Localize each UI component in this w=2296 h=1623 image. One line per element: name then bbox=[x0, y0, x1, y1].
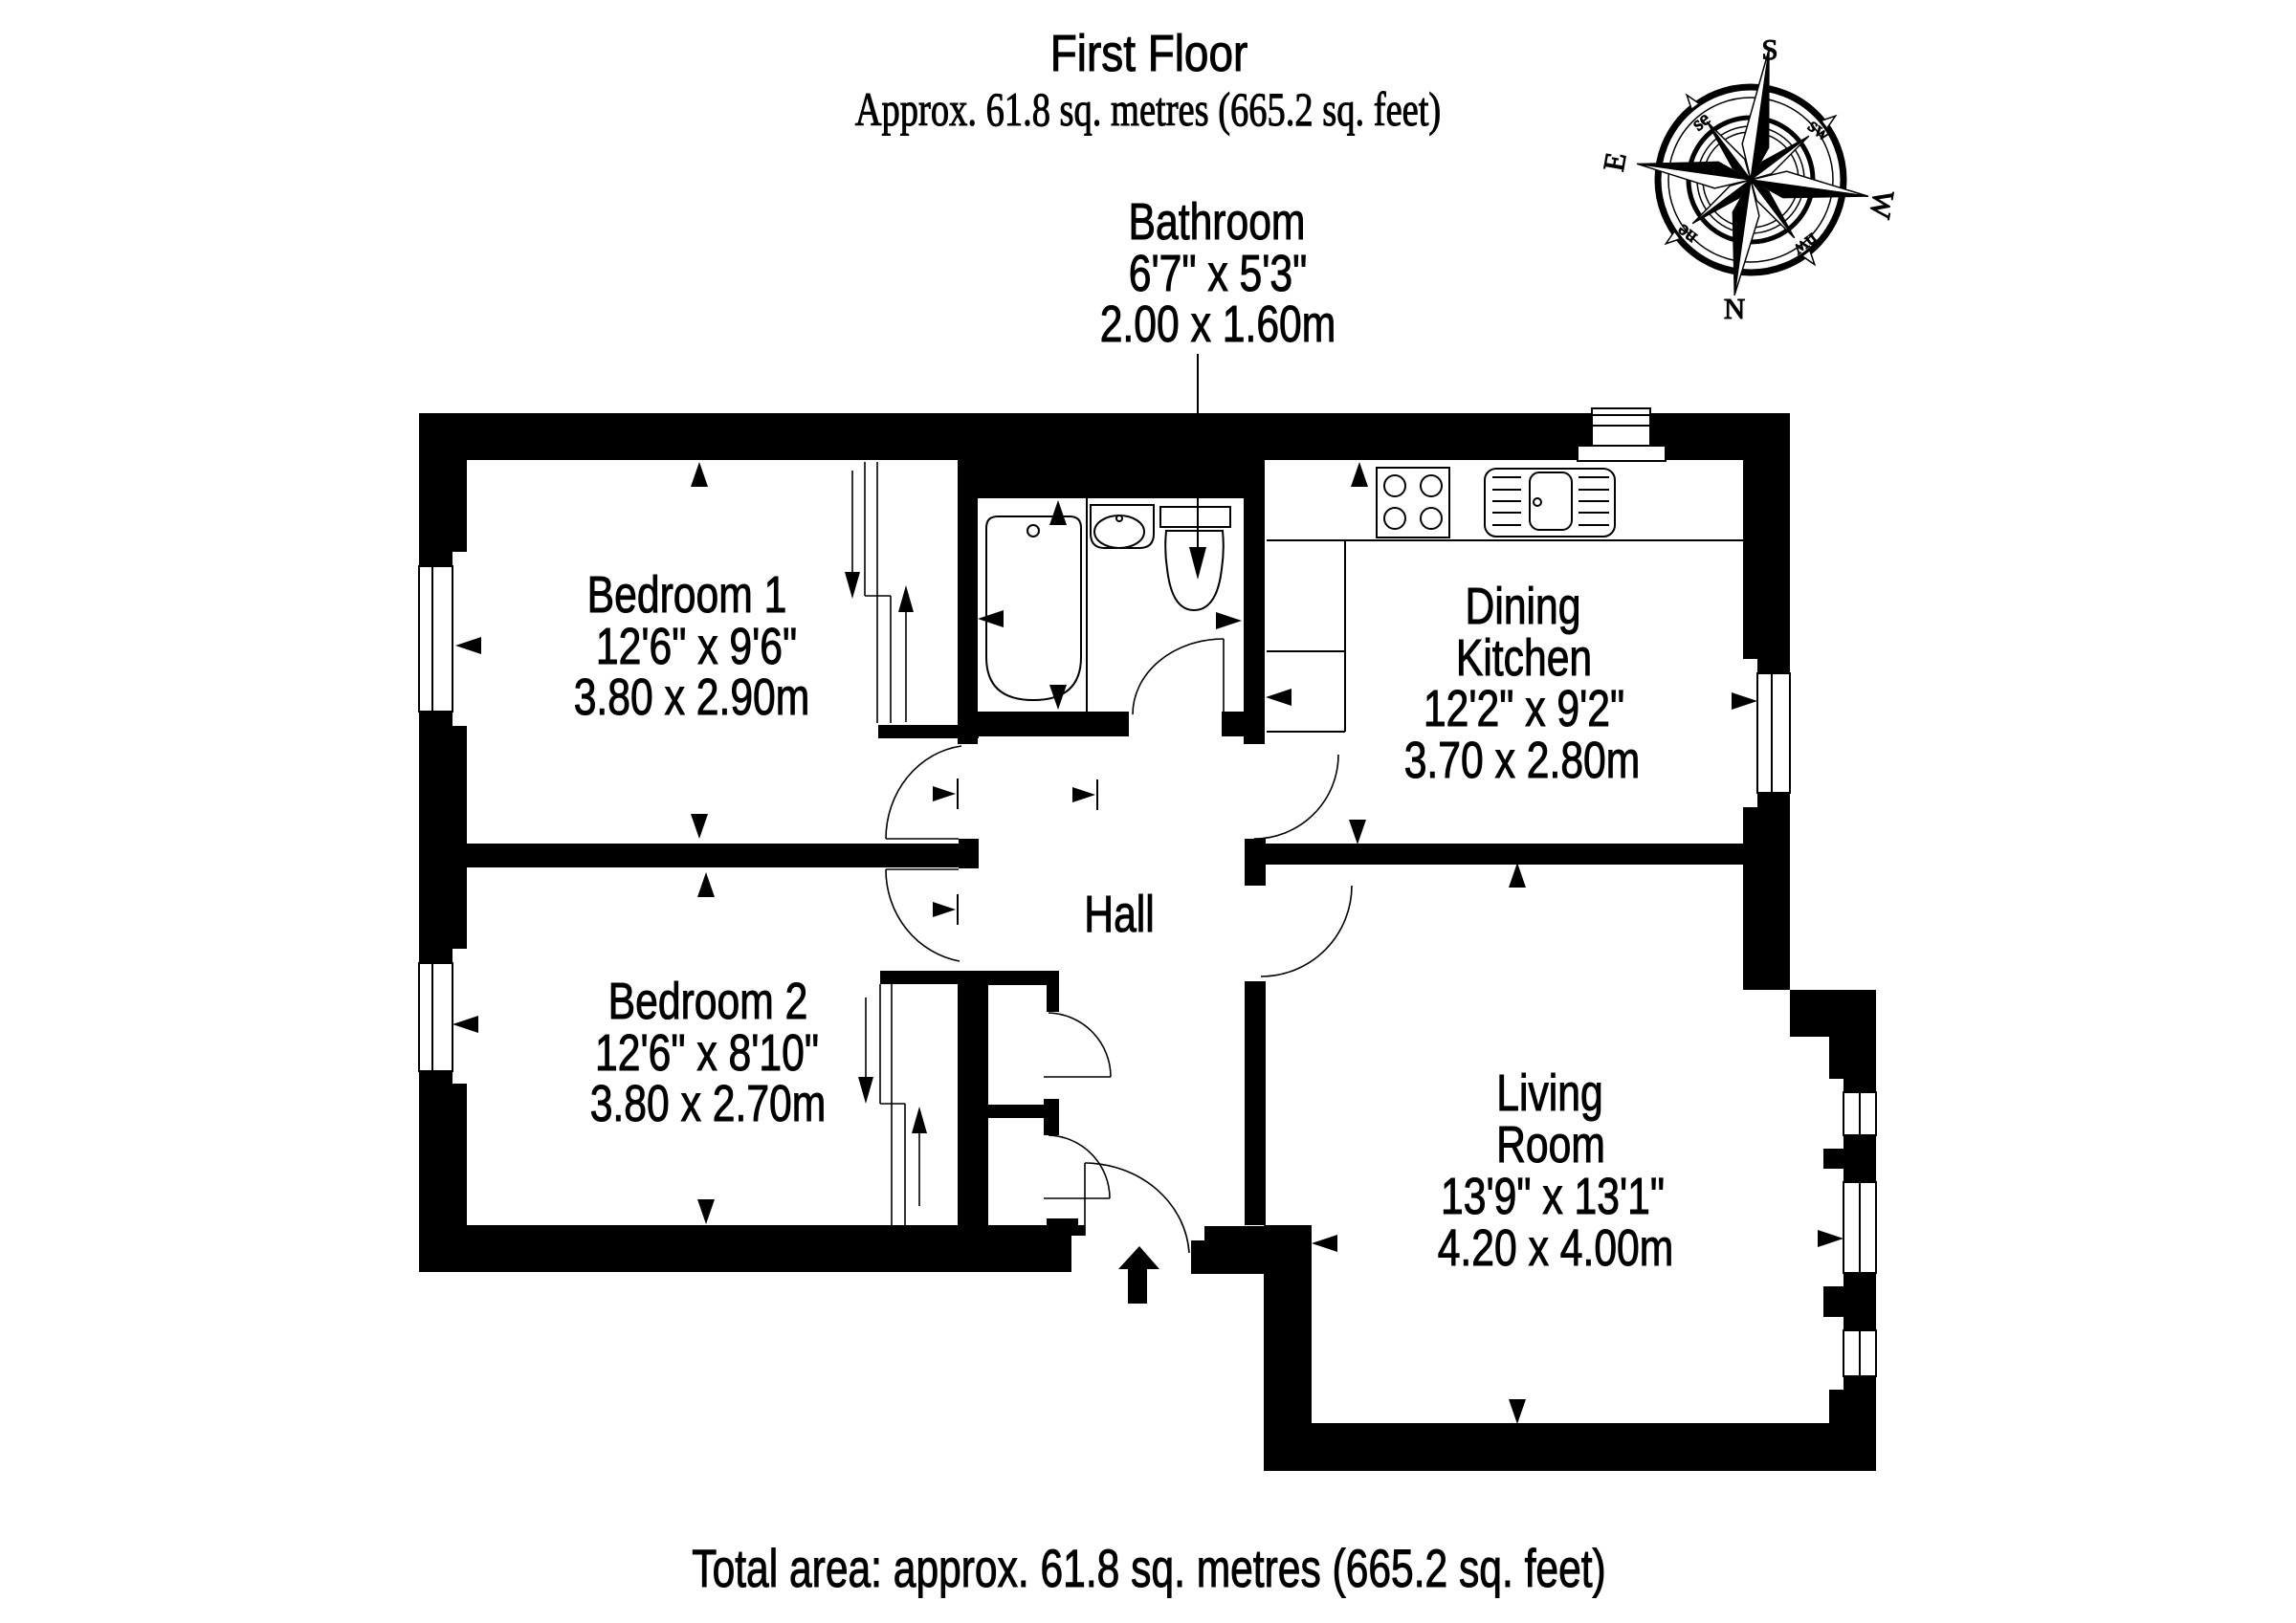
svg-text:Dining: Dining bbox=[1466, 578, 1581, 635]
svg-text:Total area: approx. 61.8 sq. m: Total area: approx. 61.8 sq. metres (665… bbox=[692, 1538, 1605, 1598]
svg-text:Approx. 61.8 sq. metres (665.2: Approx. 61.8 sq. metres (665.2 sq. feet) bbox=[855, 82, 1442, 136]
svg-text:Room: Room bbox=[1496, 1116, 1605, 1173]
svg-text:4.20 x 4.00m: 4.20 x 4.00m bbox=[1438, 1219, 1674, 1277]
svg-text:3.80 x 2.70m: 3.80 x 2.70m bbox=[590, 1075, 827, 1132]
svg-text:S: S bbox=[1761, 33, 1777, 66]
svg-text:6'7" x 5'3": 6'7" x 5'3" bbox=[1129, 245, 1307, 302]
svg-text:N: N bbox=[1724, 292, 1745, 325]
svg-text:12'6" x 9'6": 12'6" x 9'6" bbox=[596, 618, 797, 675]
svg-text:3.80 x 2.90m: 3.80 x 2.90m bbox=[574, 669, 810, 726]
svg-text:Kitchen: Kitchen bbox=[1456, 629, 1592, 687]
svg-text:Bathroom: Bathroom bbox=[1129, 193, 1306, 251]
svg-text:12'2" x 9'2": 12'2" x 9'2" bbox=[1424, 680, 1624, 737]
svg-text:Hall: Hall bbox=[1084, 886, 1154, 943]
svg-text:2.00 x 1.60m: 2.00 x 1.60m bbox=[1100, 296, 1336, 353]
svg-text:Bedroom 2: Bedroom 2 bbox=[608, 973, 808, 1030]
svg-text:First Floor: First Floor bbox=[1050, 25, 1248, 82]
svg-text:3.70 x 2.80m: 3.70 x 2.80m bbox=[1404, 732, 1641, 789]
svg-text:13'9" x 13'1": 13'9" x 13'1" bbox=[1441, 1168, 1665, 1225]
svg-text:12'6" x 8'10": 12'6" x 8'10" bbox=[595, 1024, 819, 1082]
svg-text:Bedroom 1: Bedroom 1 bbox=[587, 566, 787, 624]
svg-text:Living: Living bbox=[1496, 1064, 1602, 1122]
